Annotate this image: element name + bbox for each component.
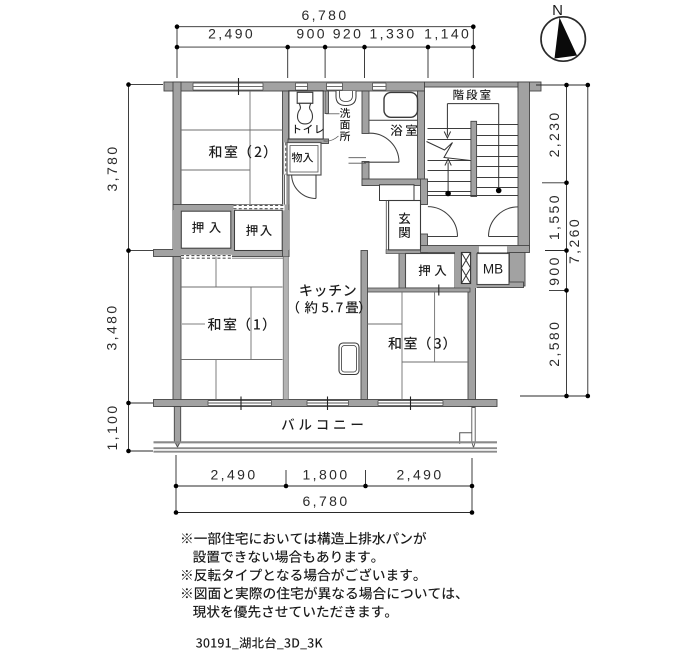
svg-text:1,550: 1,550 [546,193,562,240]
svg-text:2,580: 2,580 [546,320,562,367]
svg-text:1,330: 1,330 [369,26,416,42]
svg-text:MB: MB [483,262,503,277]
svg-text:6,780: 6,780 [301,7,348,23]
svg-text:N: N [552,2,563,19]
svg-text:3,480: 3,480 [104,303,120,350]
svg-text:900: 900 [296,26,327,42]
svg-text:2,490: 2,490 [396,466,443,482]
svg-text:920: 920 [333,26,364,42]
svg-text:2,490: 2,490 [210,466,257,482]
svg-text:1,800: 1,800 [302,466,349,482]
svg-text:6,780: 6,780 [302,493,349,509]
svg-text:3,780: 3,780 [104,144,120,191]
svg-text:1,100: 1,100 [104,403,120,450]
svg-text:1,140: 1,140 [424,26,471,42]
svg-text:2,490: 2,490 [208,26,255,42]
svg-text:7,260: 7,260 [566,217,582,264]
svg-text:900: 900 [546,255,562,286]
svg-text:2,230: 2,230 [546,110,562,157]
